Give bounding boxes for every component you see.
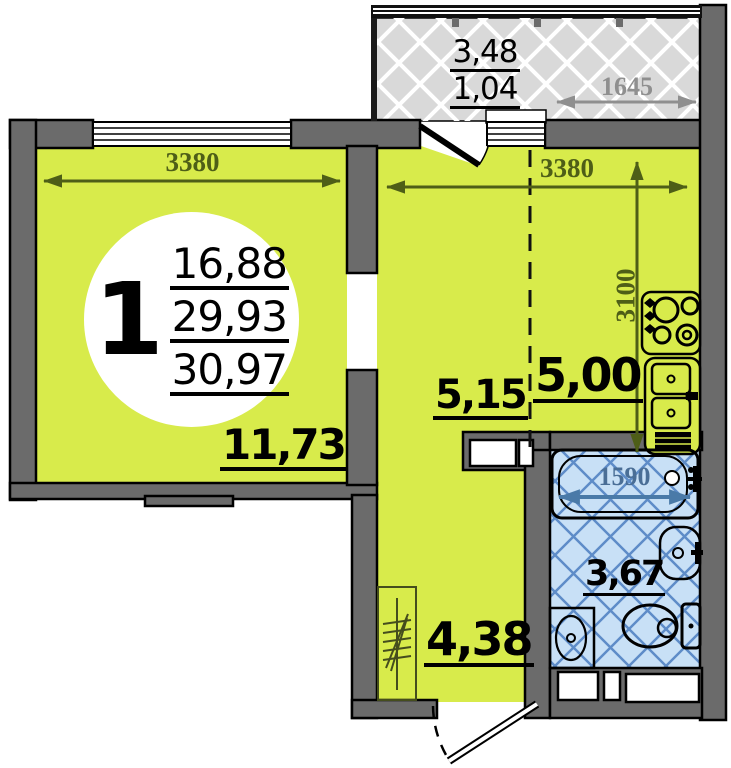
- hallway-area-label: 4,38: [424, 612, 534, 667]
- room-count: 1: [94, 270, 162, 370]
- kitchen-sink-icon: [645, 358, 700, 454]
- stove-icon: [642, 292, 700, 354]
- balcony-area-full: 3,48: [450, 37, 519, 72]
- wall-top-middle: [291, 120, 420, 148]
- glazing-tick: [534, 18, 541, 27]
- wall-living-bottom-step: [145, 496, 233, 506]
- area-with-balcony-value: 30,97: [170, 349, 289, 396]
- balcony-left-wall: [371, 5, 377, 121]
- living-width-dim: 3380: [95, 147, 290, 178]
- vent-shaft: [470, 440, 516, 466]
- wall-partition-lower: [347, 370, 377, 485]
- entrance-door-leaf: [449, 704, 537, 761]
- floor-plan: 1 16,88 29,93 30,97 3,48 1,04 11,73 5,15…: [0, 0, 731, 768]
- wall-top-right: [545, 120, 702, 148]
- balcony-area-reduced: 1,04: [450, 74, 519, 109]
- vent-shaft: [558, 672, 598, 700]
- wall-hall-bottom: [352, 700, 437, 718]
- wall-left: [10, 120, 36, 500]
- wall-bath-left: [525, 450, 550, 718]
- kitchen-hall-zone-area-label: 5,15: [433, 372, 528, 420]
- living-room-area-label: 11,73: [220, 420, 347, 471]
- total-area-value: 29,93: [170, 296, 289, 343]
- glazing-tick: [616, 18, 623, 27]
- living-area-value: 16,88: [170, 243, 289, 290]
- kitchen-zone-area-label: 5,00: [533, 348, 643, 403]
- wall-hall-left: [352, 495, 377, 718]
- bathroom-area-label: 3,67: [583, 554, 665, 596]
- vent-shaft: [626, 674, 699, 702]
- bathtub-length-dim: 1590: [577, 462, 672, 492]
- kitchen-depth-dim: 3100: [611, 236, 642, 356]
- wall-right: [700, 5, 726, 720]
- living-room-window: [93, 122, 291, 146]
- glazing-tick: [452, 18, 459, 27]
- wall-partition-upper: [347, 146, 377, 273]
- entrance-door: [433, 704, 537, 761]
- balcony-width-dim: 1645: [557, 72, 697, 102]
- kitchen-width-dim: 3380: [482, 153, 652, 184]
- balcony-area-labels: 3,48 1,04: [430, 36, 540, 110]
- kitchen-balcony-window: [487, 122, 545, 146]
- apartment-info-badge: 1 16,88 29,93 30,97: [84, 212, 299, 427]
- vent-shaft: [604, 672, 620, 700]
